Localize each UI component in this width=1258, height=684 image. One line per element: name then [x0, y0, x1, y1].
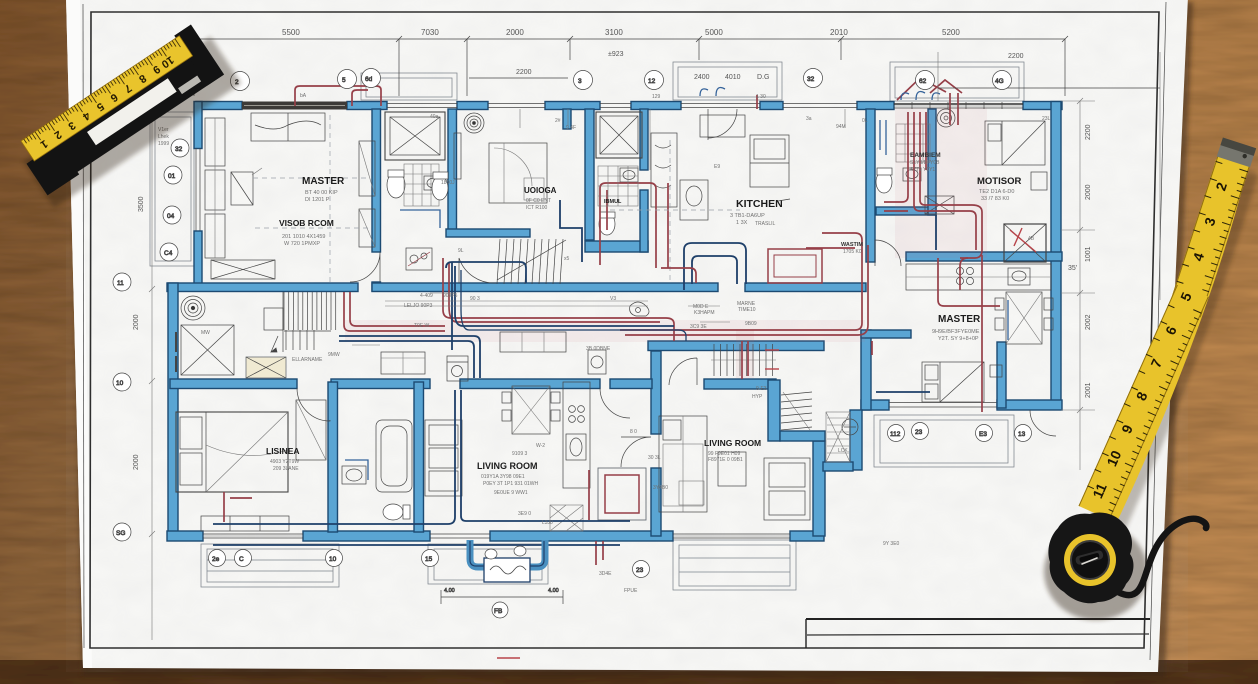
svg-text:8 0: 8 0	[630, 429, 637, 435]
svg-text:UOIOGA: UOIOGA	[524, 186, 557, 195]
svg-text:11: 11	[117, 280, 124, 287]
svg-text:01: 01	[168, 173, 176, 180]
svg-text:35': 35'	[1068, 265, 1077, 272]
svg-text:12: 12	[648, 78, 656, 85]
svg-text:K3HAPM: K3HAPM	[694, 310, 715, 316]
svg-text:S1Y3/BFY0B: S1Y3/BFY0B	[910, 160, 940, 166]
svg-text:2002: 2002	[1085, 314, 1092, 330]
svg-text:1001: 1001	[1085, 246, 1092, 262]
svg-text:9 4F: 9 4F	[566, 125, 576, 131]
svg-text:129: 129	[652, 94, 661, 100]
svg-text:9E0UE 9 WW1: 9E0UE 9 WW1	[494, 490, 528, 496]
svg-text:4-409: 4-409	[420, 293, 433, 299]
svg-text:1999: 1999	[158, 141, 169, 147]
svg-text:MASTER: MASTER	[938, 314, 981, 325]
svg-text:D.G: D.G	[757, 74, 769, 81]
svg-text:2000: 2000	[506, 28, 524, 37]
svg-text:15: 15	[425, 556, 433, 563]
svg-text:E3: E3	[979, 431, 987, 438]
svg-text:KITCHEN: KITCHEN	[736, 198, 783, 210]
svg-text:LIVING ROOM: LIVING ROOM	[704, 438, 761, 448]
svg-text:±923: ±923	[608, 51, 624, 58]
svg-text:S779 Y0Y1: S779 Y0Y1	[910, 167, 935, 173]
svg-text:5000: 5000	[705, 28, 723, 37]
svg-text:1 30: 1 30	[756, 94, 766, 100]
svg-text:019Y1A 3Y98 09E1: 019Y1A 3Y98 09E1	[481, 474, 525, 480]
svg-text:LISINEA: LISINEA	[266, 446, 300, 456]
svg-text:4.00: 4.00	[548, 588, 559, 594]
svg-text:23: 23	[915, 429, 923, 436]
svg-text:2200: 2200	[1085, 124, 1092, 140]
svg-text:bA: bA	[300, 93, 307, 99]
svg-text:MASTER: MASTER	[302, 176, 345, 187]
svg-text:2001: 2001	[1085, 382, 1092, 398]
svg-text:2400: 2400	[694, 74, 710, 81]
svg-text:4.00: 4.00	[444, 588, 455, 594]
svg-text:W 720 1PMXP: W 720 1PMXP	[284, 241, 320, 247]
svg-text:5: 5	[342, 77, 346, 84]
svg-text:9H9E/BF3FYE0ME: 9H9E/BF3FYE0ME	[932, 329, 980, 335]
svg-text:04: 04	[167, 213, 175, 220]
svg-text:3B 0DBNE: 3B 0DBNE	[586, 346, 611, 352]
svg-text:3: 3	[578, 78, 582, 85]
svg-text:9-E3: 9-E3	[756, 386, 767, 392]
svg-text:2200: 2200	[516, 69, 532, 76]
svg-text:LELJO 90P3: LELJO 90P3	[404, 303, 433, 309]
svg-text:3D4E: 3D4E	[599, 571, 612, 577]
svg-text:IBMUL: IBMUL	[604, 199, 622, 205]
svg-text:0L: 0L	[862, 118, 868, 124]
svg-text:TE2 D1A 6-D0: TE2 D1A 6-D0	[979, 189, 1014, 195]
svg-text:0F C0 ENT: 0F C0 ENT	[526, 198, 551, 204]
svg-text:3Y4B0: 3Y4B0	[653, 485, 668, 491]
svg-text:112: 112	[890, 431, 901, 438]
svg-text:2010: 2010	[830, 28, 848, 37]
svg-text:32: 32	[807, 76, 815, 83]
svg-text:2000: 2000	[133, 314, 140, 330]
svg-text:9B09: 9B09	[745, 321, 757, 327]
svg-text:MW: MW	[201, 330, 210, 336]
svg-text:3100: 3100	[605, 28, 623, 37]
svg-text:5500: 5500	[282, 28, 300, 37]
svg-text:DI 1201 P: DI 1201 P	[305, 197, 330, 203]
svg-text:T0E W: T0E W	[414, 323, 430, 329]
svg-text:F8971E 0 09B1: F8971E 0 09B1	[708, 457, 743, 463]
svg-text:6d: 6d	[365, 76, 373, 83]
svg-text:FB: FB	[494, 608, 502, 615]
svg-text:3500: 3500	[138, 196, 145, 212]
svg-text:SG: SG	[116, 530, 125, 537]
svg-text:32: 32	[175, 146, 183, 153]
svg-text:MOTISOR: MOTISOR	[977, 176, 1021, 187]
svg-text:5200: 5200	[942, 28, 960, 37]
svg-text:4010: 4010	[725, 74, 741, 81]
svg-text:Y2T. SY 9+8+0P: Y2T. SY 9+8+0P	[938, 336, 979, 342]
svg-text:9L: 9L	[458, 248, 464, 254]
svg-text:1705 K0: 1705 K0	[843, 249, 862, 255]
svg-text:3a: 3a	[806, 116, 812, 122]
svg-text:1800J: 1800J	[441, 180, 455, 186]
svg-text:4B: 4B	[1028, 236, 1035, 242]
svg-text:2e: 2e	[212, 556, 220, 563]
svg-text:E9: E9	[714, 164, 720, 170]
svg-text:2000: 2000	[1085, 184, 1092, 200]
svg-text:23L: 23L	[1042, 116, 1051, 122]
svg-text:2#: 2#	[555, 118, 561, 124]
svg-text:EAMBIEM: EAMBIEM	[910, 152, 941, 159]
svg-text:209 3LANE: 209 3LANE	[273, 466, 299, 472]
svg-text:C: C	[239, 556, 244, 563]
svg-text:L3J0: L3J0	[542, 520, 553, 526]
svg-text:2200: 2200	[1008, 53, 1024, 60]
svg-text:9109 3: 9109 3	[512, 451, 528, 457]
svg-text:LIVING ROOM: LIVING ROOM	[477, 461, 538, 471]
svg-text:201 1010 4X1459: 201 1010 4X1459	[282, 234, 325, 240]
svg-text:V3: V3	[610, 296, 616, 302]
svg-text:9MW: 9MW	[328, 352, 340, 358]
svg-text:ELLARNAME: ELLARNAME	[292, 357, 323, 363]
svg-text:TRASLIL: TRASLIL	[755, 221, 776, 227]
svg-text:30 3L: 30 3L	[648, 455, 661, 461]
svg-text:9Y 3E0: 9Y 3E0	[883, 541, 900, 547]
svg-text:23: 23	[636, 567, 644, 574]
svg-text:P0EY 3T 1P1 931 01WH: P0EY 3T 1P1 931 01WH	[483, 481, 539, 487]
svg-text:909P5: 909P5	[443, 293, 458, 299]
svg-text:FPUE: FPUE	[624, 588, 638, 594]
svg-text:3E9 0: 3E9 0	[518, 511, 531, 517]
svg-text:2000: 2000	[133, 454, 140, 470]
svg-text:WASTIM: WASTIM	[841, 242, 863, 248]
svg-text:VISOB RCOM: VISOB RCOM	[279, 218, 334, 228]
svg-text:W-2: W-2	[536, 443, 545, 449]
svg-text:C4: C4	[164, 250, 173, 257]
svg-text:4G: 4G	[995, 78, 1004, 85]
svg-text:94M: 94M	[836, 124, 846, 130]
svg-text:4903 Y2T9W: 4903 Y2T9W	[270, 459, 299, 465]
svg-text:62: 62	[919, 78, 927, 85]
svg-text:33 /7 83 K0: 33 /7 83 K0	[981, 196, 1009, 202]
svg-text:3 TB1-DA6UP: 3 TB1-DA6UP	[730, 213, 765, 219]
svg-text:HYP: HYP	[752, 394, 763, 400]
svg-text:3C9 3E: 3C9 3E	[690, 324, 707, 330]
svg-text:90 3: 90 3	[470, 296, 480, 302]
svg-text:10: 10	[329, 556, 337, 563]
svg-text:13: 13	[1018, 431, 1026, 438]
svg-text:x5: x5	[564, 256, 570, 262]
svg-text:40a: 40a	[430, 114, 439, 120]
svg-text:10: 10	[116, 380, 124, 387]
svg-text:TIME10: TIME10	[738, 307, 756, 313]
svg-text:1 3X: 1 3X	[736, 220, 748, 226]
svg-text:7030: 7030	[421, 28, 439, 37]
svg-text:LCK.: LCK.	[838, 448, 849, 454]
svg-text:BT 40 00 KIP: BT 40 00 KIP	[305, 190, 338, 196]
svg-text:ICT R100: ICT R100	[526, 205, 548, 211]
